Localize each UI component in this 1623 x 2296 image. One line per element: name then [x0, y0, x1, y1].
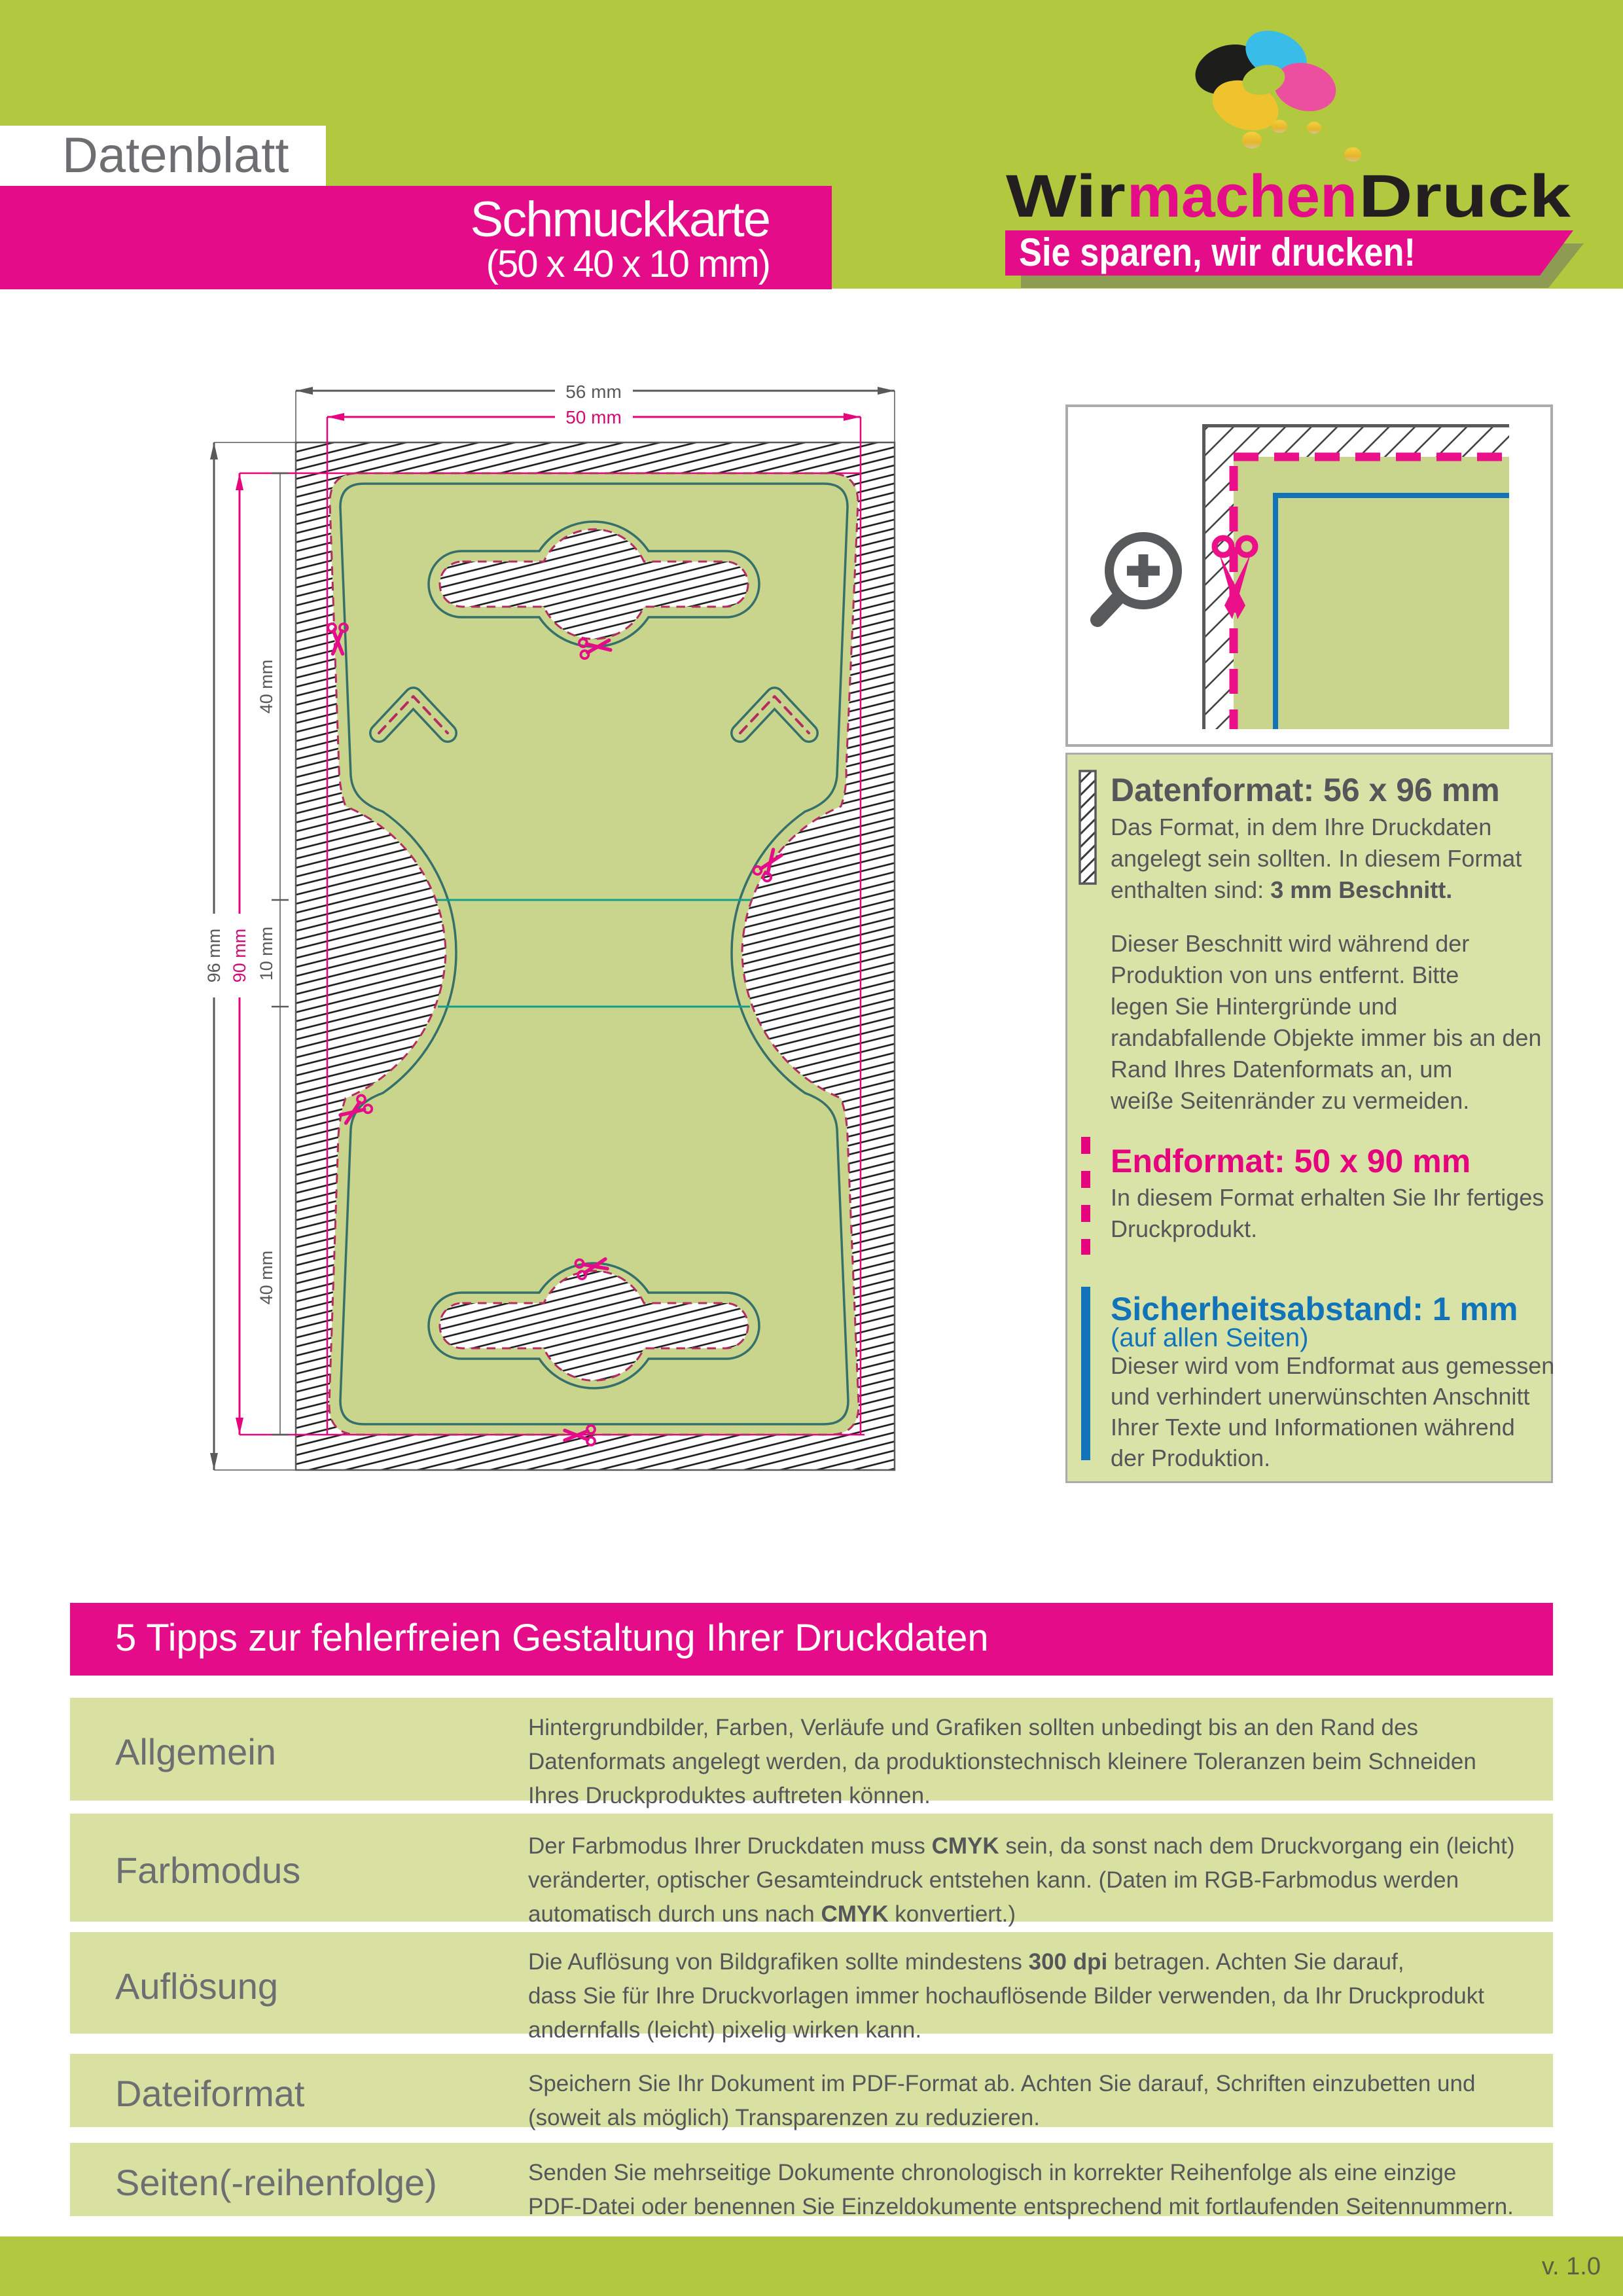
- svg-text:Wir: Wir: [1006, 163, 1126, 230]
- svg-text:Sie sparen, wir drucken!: Sie sparen, wir drucken!: [1019, 230, 1416, 274]
- svg-text:96 mm: 96 mm: [204, 929, 224, 983]
- svg-text:50 mm: 50 mm: [565, 407, 622, 427]
- svg-text:10 mm: 10 mm: [257, 927, 276, 981]
- svg-text:40 mm: 40 mm: [257, 1251, 276, 1305]
- svg-text:machen: machen: [1127, 163, 1357, 230]
- svg-text:90 mm: 90 mm: [230, 929, 249, 983]
- svg-text:56 mm: 56 mm: [565, 382, 622, 402]
- svg-text:Druck: Druck: [1359, 163, 1571, 230]
- svg-text:40 mm: 40 mm: [257, 660, 276, 714]
